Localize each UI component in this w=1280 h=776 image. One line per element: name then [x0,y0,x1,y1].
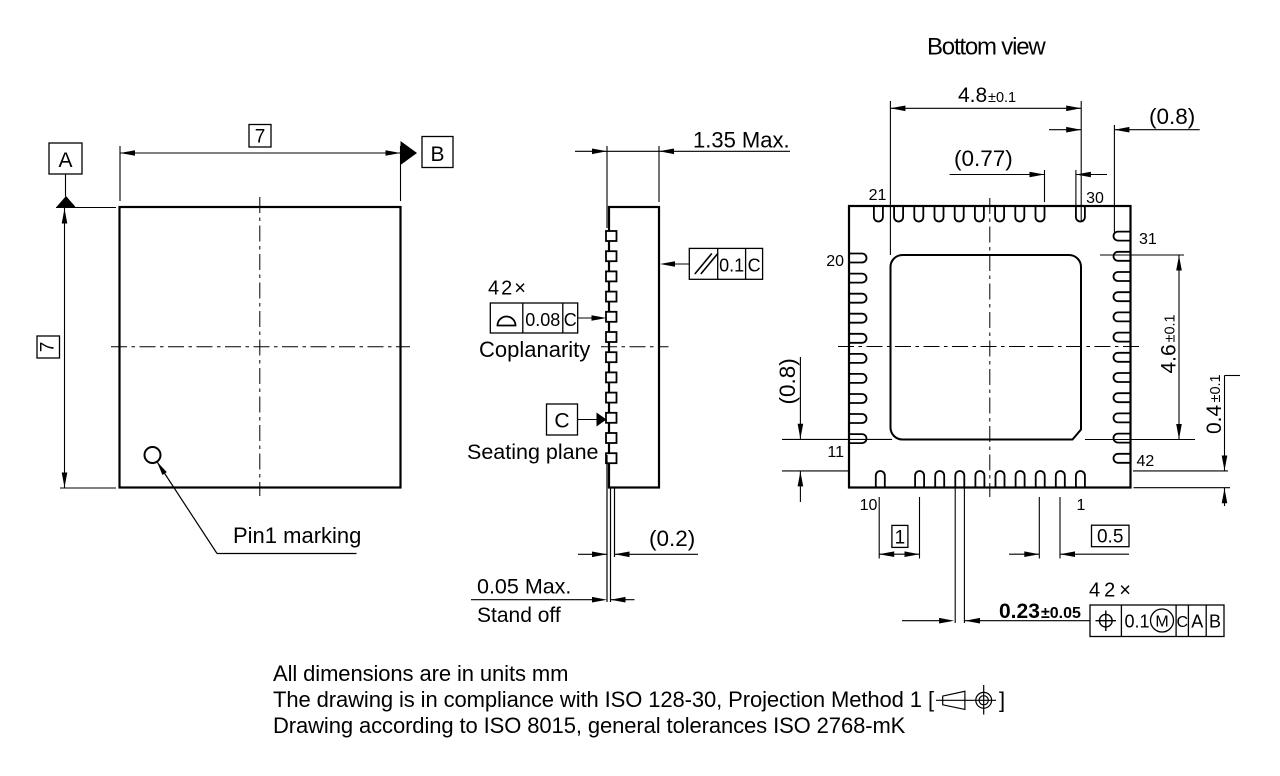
svg-text:Pin1 marking: Pin1 marking [233,523,361,548]
svg-text:C: C [1177,614,1189,631]
svg-text:1.35 Max.: 1.35 Max. [693,128,790,153]
svg-text:Bottom view: Bottom view [927,34,1046,61]
svg-text:0.4: 0.4 [1203,404,1226,434]
svg-text:0.5: 0.5 [1097,527,1123,548]
svg-text:42×: 42× [488,278,528,300]
svg-text:0.1: 0.1 [719,256,744,276]
svg-text:1: 1 [1077,497,1086,514]
svg-text:The drawing is in compliance w: The drawing is in compliance with ISO 12… [273,687,934,712]
svg-text:]: ] [999,688,1005,713]
svg-text:10: 10 [860,497,878,514]
svg-text:0.05 Max.: 0.05 Max. [477,575,571,599]
svg-text:31: 31 [1139,231,1157,248]
svg-text:B: B [430,143,444,166]
svg-text:Seating plane: Seating plane [467,440,599,464]
svg-text:±0.1: ±0.1 [1208,374,1224,402]
svg-text:C: C [564,310,577,330]
svg-text:0.23: 0.23 [999,600,1040,623]
svg-text:(0.8): (0.8) [1149,104,1195,129]
svg-text:C: C [554,410,569,433]
svg-text:0.08: 0.08 [525,310,560,330]
svg-text:42: 42 [1137,453,1155,470]
svg-text:(0.8): (0.8) [775,358,800,404]
svg-text:11: 11 [827,444,844,461]
svg-text:±0.05: ±0.05 [1041,605,1081,622]
svg-text:Stand off: Stand off [477,604,561,627]
svg-text:1: 1 [895,528,906,549]
svg-text:±0.1: ±0.1 [988,90,1016,106]
svg-text:7: 7 [255,127,266,148]
svg-text:7: 7 [38,342,59,353]
svg-text:Coplanarity: Coplanarity [479,337,590,362]
svg-text:30: 30 [1086,190,1104,207]
svg-text:A: A [58,149,72,172]
svg-text:(0.2): (0.2) [649,526,695,551]
svg-text:21: 21 [869,187,887,204]
svg-text:C: C [748,256,761,276]
svg-text:All dimensions are in units mm: All dimensions are in units mm [273,661,568,686]
svg-text:42×: 42× [1089,580,1135,602]
svg-text:A: A [1191,612,1203,632]
svg-text:M: M [1155,614,1168,631]
svg-text:4.6: 4.6 [1158,344,1181,373]
svg-text:Drawing according to ISO 8015,: Drawing according to ISO 8015, general t… [273,713,906,738]
svg-text:±0.1: ±0.1 [1163,314,1179,342]
svg-text:B: B [1209,612,1221,632]
svg-text:0.1: 0.1 [1125,612,1150,632]
svg-text:20: 20 [826,253,844,270]
svg-text:(0.77): (0.77) [954,146,1013,171]
svg-text:4.8: 4.8 [958,84,987,107]
